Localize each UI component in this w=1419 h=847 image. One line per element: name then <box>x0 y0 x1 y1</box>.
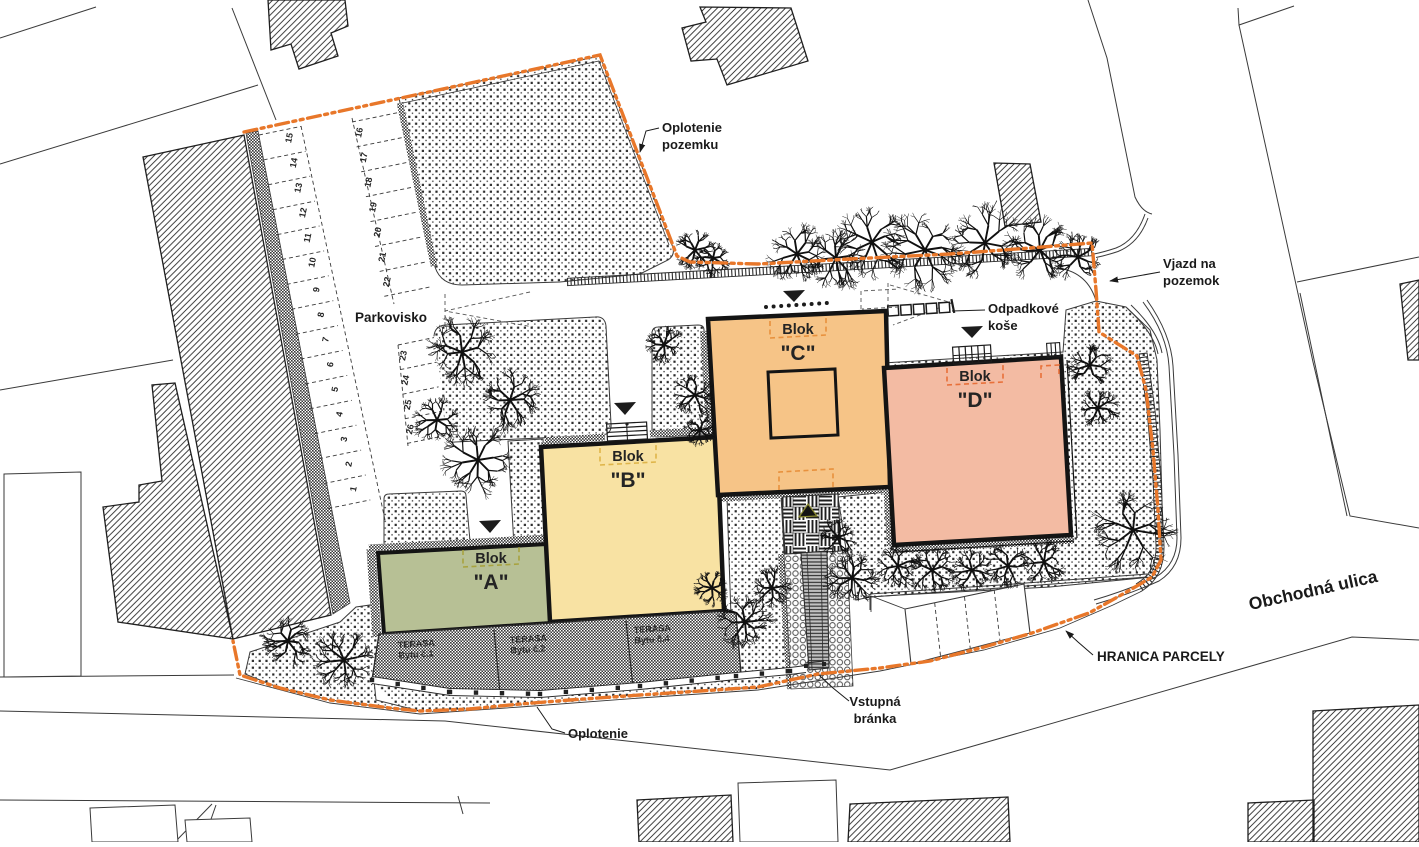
svg-text:Blok: Blok <box>612 449 644 465</box>
svg-text:pozemku: pozemku <box>662 137 718 152</box>
svg-text:bránka: bránka <box>854 711 897 726</box>
svg-text:25: 25 <box>402 399 414 411</box>
svg-text:"A": "A" <box>473 571 508 594</box>
svg-text:24: 24 <box>399 374 411 386</box>
svg-text:Bytu č.2: Bytu č.2 <box>510 643 546 655</box>
svg-text:Oplotenie: Oplotenie <box>662 120 722 135</box>
svg-text:21: 21 <box>376 251 388 263</box>
svg-text:Parkovisko: Parkovisko <box>355 310 427 325</box>
svg-text:Blok: Blok <box>782 322 814 338</box>
svg-text:Vjazd na: Vjazd na <box>1163 256 1217 271</box>
svg-text:15: 15 <box>283 132 295 144</box>
svg-text:12: 12 <box>297 207 309 219</box>
svg-text:pozemok: pozemok <box>1163 273 1220 288</box>
svg-text:20: 20 <box>372 226 384 238</box>
svg-text:"C": "C" <box>780 342 815 365</box>
svg-text:11: 11 <box>302 232 314 243</box>
svg-text:Bytu č.4: Bytu č.4 <box>634 633 670 645</box>
svg-text:23: 23 <box>397 350 409 362</box>
svg-text:HRANICA PARCELY: HRANICA PARCELY <box>1097 649 1225 664</box>
svg-text:10: 10 <box>306 256 318 268</box>
svg-text:14: 14 <box>288 157 300 169</box>
svg-text:26: 26 <box>404 423 416 435</box>
svg-text:Blok: Blok <box>959 369 991 385</box>
svg-text:13: 13 <box>292 182 304 194</box>
svg-text:Bytu č.1: Bytu č.1 <box>398 648 434 660</box>
svg-text:koše: koše <box>988 318 1018 333</box>
svg-text:17: 17 <box>358 151 370 163</box>
svg-text:18: 18 <box>362 176 374 188</box>
svg-text:Vstupná: Vstupná <box>849 694 901 709</box>
svg-text:"B": "B" <box>610 469 645 492</box>
svg-text:Odpadkové: Odpadkové <box>988 301 1059 316</box>
svg-text:16: 16 <box>353 127 365 139</box>
svg-text:19: 19 <box>367 201 379 213</box>
svg-text:Blok: Blok <box>475 551 507 567</box>
svg-text:"D": "D" <box>957 389 992 412</box>
svg-text:22: 22 <box>381 276 393 288</box>
svg-text:Oplotenie: Oplotenie <box>568 726 628 741</box>
